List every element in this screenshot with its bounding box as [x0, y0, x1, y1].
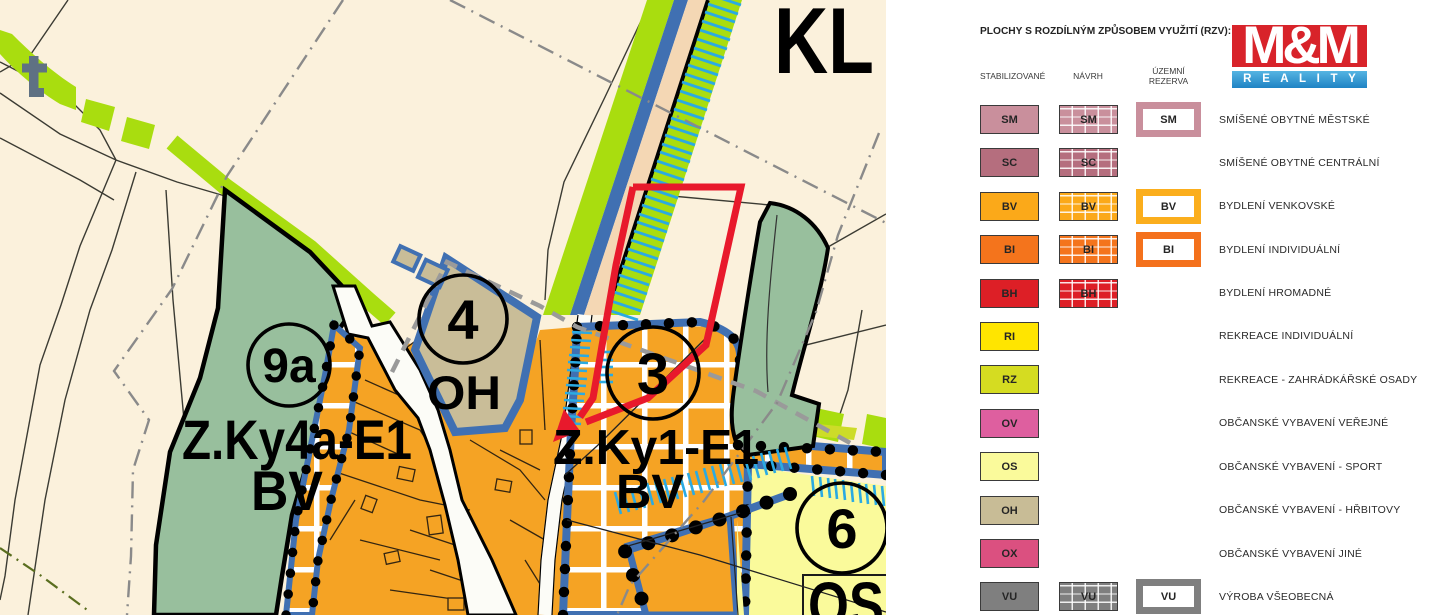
svg-text:KL: KL: [774, 0, 874, 93]
svg-text:3: 3: [637, 342, 669, 407]
svg-text:OS: OS: [808, 569, 884, 615]
svg-text:OH: OH: [427, 366, 501, 419]
svg-text:BV: BV: [251, 459, 323, 522]
svg-text:6: 6: [826, 497, 857, 560]
svg-text:BV: BV: [616, 466, 684, 519]
svg-text:4: 4: [447, 288, 478, 351]
svg-text:9a: 9a: [262, 340, 316, 393]
